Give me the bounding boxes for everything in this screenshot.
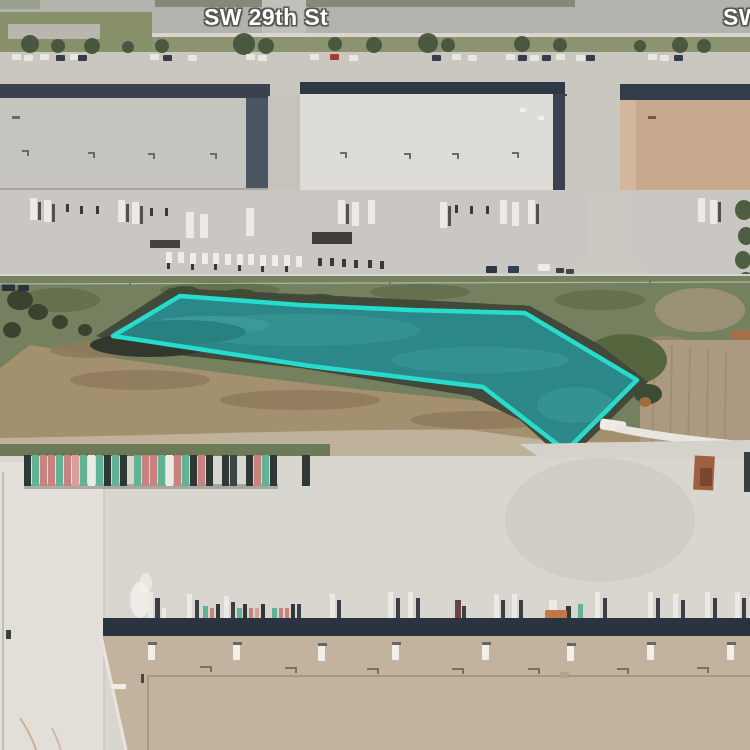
warehouse-middle	[300, 82, 567, 192]
aerial-imagery	[0, 0, 750, 750]
driveway-gap-right	[565, 96, 622, 196]
bottom-warehouse	[101, 618, 750, 750]
street-label-sw-29th-st: SW 29th St	[204, 4, 328, 31]
street-label-sw-29th-st-clipped: SW 29th St	[723, 4, 750, 31]
satellite-map[interactable]: SW 29th St SW 29th St	[0, 0, 750, 750]
warehouse-right	[620, 84, 750, 192]
driveway-gap-left	[268, 96, 302, 196]
warehouse-left	[0, 84, 270, 190]
